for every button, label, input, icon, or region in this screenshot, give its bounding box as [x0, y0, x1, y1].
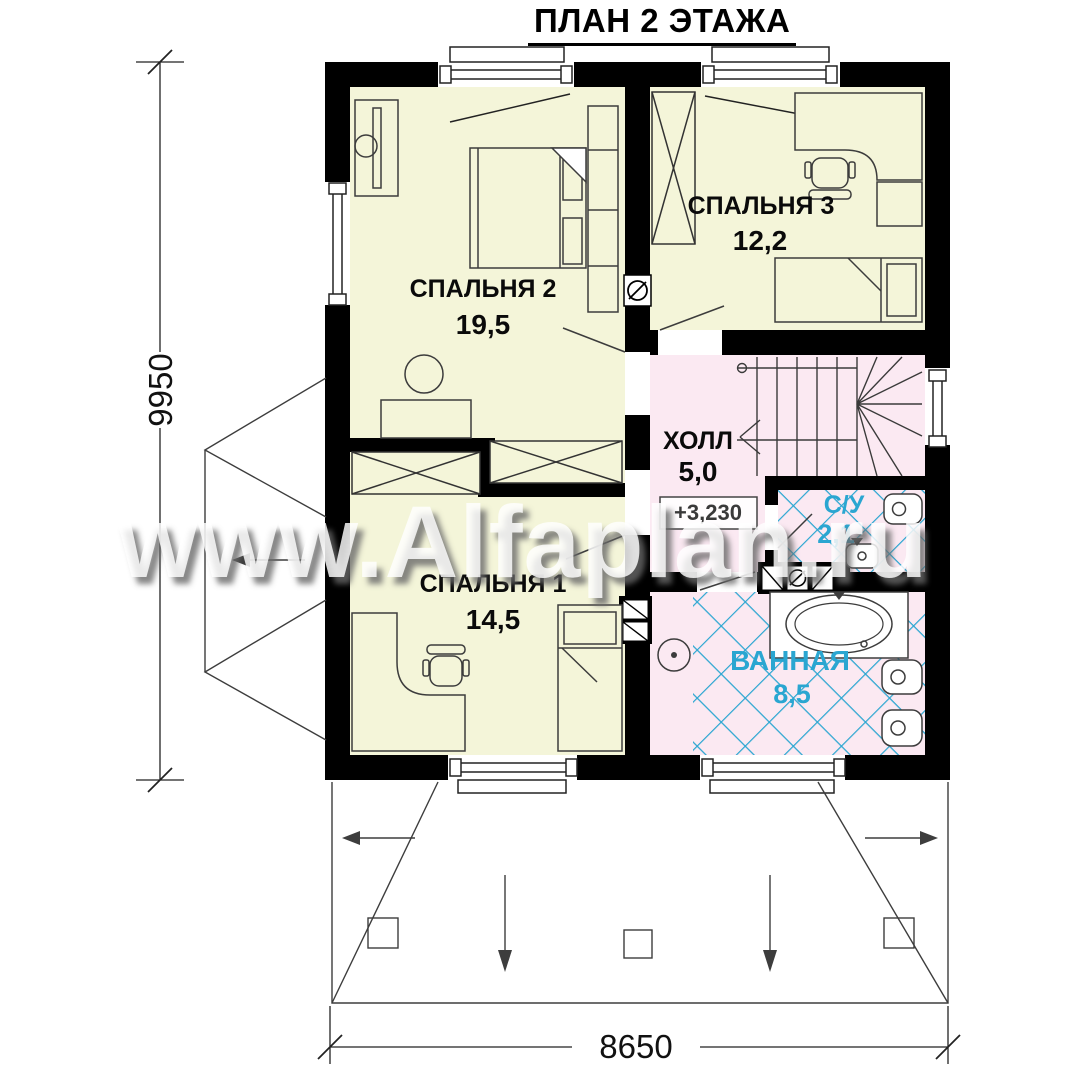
bidet: [882, 710, 922, 746]
single-bed: [775, 258, 922, 322]
wall-left: [325, 62, 350, 780]
area-hall: 5,0: [679, 456, 718, 487]
double-bed: [470, 148, 586, 268]
label-bedroom1: СПАЛЬНЯ 1: [420, 570, 567, 598]
label-bedroom2: СПАЛЬНЯ 2: [410, 275, 557, 303]
shelf-column: [588, 106, 618, 312]
area-bedroom1: 14,5: [466, 604, 521, 635]
vent-central-wall: [624, 275, 651, 306]
dimension-width-value: 8650: [599, 1028, 672, 1065]
vent-bathroom-cluster: [758, 562, 850, 594]
closet-bedroom2: [490, 441, 622, 483]
door-bedroom1: [625, 470, 650, 535]
slope-arrow-right: [865, 831, 938, 845]
nightstand: [877, 182, 922, 226]
roof-post: [368, 918, 398, 948]
wardrobe-bedroom3: [652, 92, 695, 244]
window-bottom-2: [700, 755, 845, 793]
toilet: [882, 660, 922, 694]
area-bedroom3: 12,2: [733, 225, 788, 256]
toilet: [884, 494, 922, 524]
door-bedroom3: [658, 330, 722, 355]
label-bedroom3: СПАЛЬНЯ 3: [688, 192, 835, 220]
dimension-horizontal: 8650: [318, 1006, 960, 1065]
floor-plan-page: ПЛАН 2 ЭТАЖА: [0, 0, 1080, 1080]
roof-post: [884, 918, 914, 948]
door-bedroom2: [625, 352, 650, 415]
wall-under-stairs: [765, 476, 925, 490]
window-right-stairs: [925, 368, 950, 447]
slope-arrow-left: [342, 831, 415, 845]
elevation-value: +3,230: [674, 500, 742, 525]
office-chair: [423, 645, 469, 686]
floor-plan-drawing: +3,230: [0, 0, 1080, 1080]
area-bedroom2: 19,5: [456, 309, 511, 340]
window-bottom-1: [448, 755, 577, 793]
lower-roof-plan: [332, 782, 948, 1003]
door-wc: [765, 505, 778, 550]
label-hall: ХОЛЛ: [663, 427, 733, 455]
left-bay-roof: [205, 378, 326, 740]
bay-arrow-left: [232, 553, 305, 567]
roof-post: [624, 930, 652, 958]
closet-bedroom1: [352, 452, 480, 494]
wall-closet-a: [350, 438, 483, 452]
label-wc: С/У: [824, 491, 865, 519]
wall-bottom: [325, 755, 950, 780]
area-wc: 2,1: [817, 519, 855, 549]
slope-arrow-down-2: [763, 875, 777, 972]
area-bathroom: 8,5: [773, 679, 811, 709]
wall-top: [325, 62, 950, 87]
wall-closet-b: [483, 483, 625, 497]
slope-arrow-down-1: [498, 875, 512, 972]
label-bathroom: ВАННАЯ: [730, 645, 850, 676]
dimension-height-value: 9950: [142, 353, 179, 426]
window-left: [325, 182, 350, 305]
single-bed: [558, 605, 622, 751]
elevation-mark: +3,230: [660, 497, 757, 529]
wall-central: [625, 87, 650, 755]
vent-bedroom1: [619, 596, 652, 644]
dimension-vertical: 9950: [136, 50, 184, 792]
